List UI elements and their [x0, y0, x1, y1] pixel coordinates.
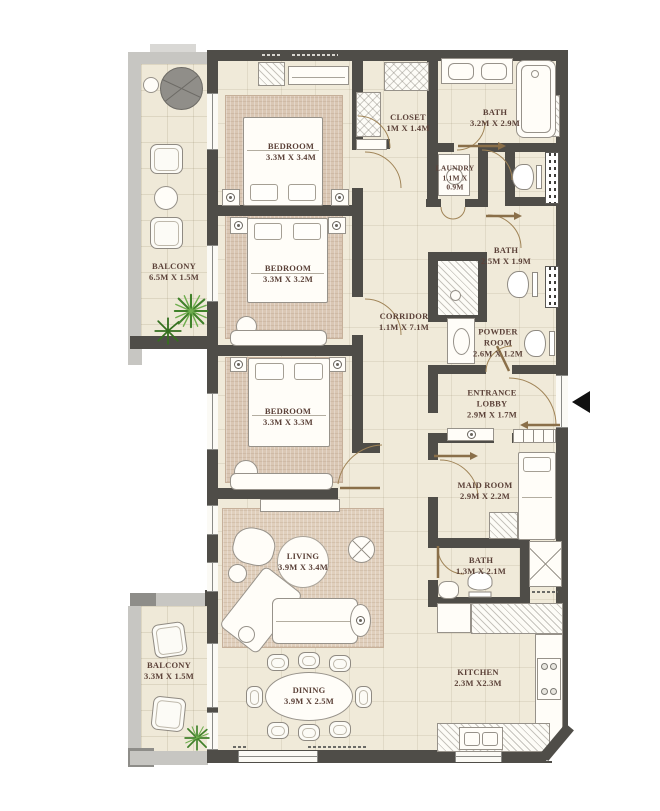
wall-corridor-b [352, 188, 363, 297]
room-dims: 3.3M X 3.4M [266, 152, 316, 163]
kitchen-sink [459, 727, 503, 750]
room-name: DINING [284, 685, 334, 696]
room-name: CORRIDOR [379, 311, 429, 322]
room-label-bedroom-3: BEDROOM 3.3M X 3.3M [263, 406, 313, 428]
wall-bed2-bed3 [207, 345, 353, 356]
room-name: MAID ROOM [458, 480, 513, 491]
room-name: LIVING [278, 551, 328, 562]
dining-chair [246, 686, 263, 708]
room-label-bath-1: BATH 3.2M X 2.9M [470, 107, 520, 129]
room-label-entrance-lobby: ENTRANCE LOBBY 2.9M X 1.7M [464, 388, 520, 421]
bath2-drain [450, 290, 461, 301]
dining-chair [267, 654, 289, 671]
dining-chair [329, 655, 351, 672]
bath2-toilet [507, 271, 538, 298]
bedroom2-nightstand-left [230, 217, 248, 234]
wall-laundry-right [478, 143, 488, 207]
room-label-laundry: LAUNDRY 1.1M X 0.9M [434, 164, 476, 193]
room-label-balcony-1: BALCONY 6.5M X 1.5M [149, 261, 199, 283]
bedroom1-nightstand-left [222, 189, 240, 206]
closet-cabinet [356, 139, 387, 150]
bedroom3-nightstand-left [230, 357, 247, 372]
side-table [350, 604, 371, 637]
room-label-dining: DINING 3.9M X 2.5M [284, 685, 334, 707]
wall-bath1-bottom-b [482, 143, 566, 152]
dining-chair [298, 724, 320, 741]
room-label-living: LIVING 3.9M X 3.4M [278, 551, 328, 573]
dimension-ticks [233, 746, 247, 748]
powder-toilet [524, 330, 555, 357]
bath3-sink [438, 581, 459, 599]
bedroom3-nightstand-right [329, 357, 346, 372]
room-dims: 1.3M X 2.1M [456, 566, 506, 577]
room-dims: 3.3M X 3.3M [263, 417, 313, 428]
living-window-1 [207, 505, 218, 535]
bath1-tub [516, 60, 556, 138]
room-dims: 2.3M X2.3M [454, 678, 502, 689]
closet-shelves-left [356, 92, 381, 137]
wall-bath3-top [428, 538, 530, 548]
bedroom1-wardrobe [288, 66, 349, 85]
room-label-kitchen: KITCHEN 2.3M X2.3M [454, 667, 502, 689]
shoe-cabinet [513, 429, 556, 443]
room-name: CLOSET [386, 112, 429, 123]
balcony1-top-rail [130, 52, 208, 64]
maid-dresser [489, 512, 518, 539]
bath2-shower-area [438, 261, 478, 315]
wall-bath2-left [428, 252, 438, 322]
room-dims: 2.9M X 2.2M [458, 491, 513, 502]
balcony2-top-cap [130, 593, 156, 606]
bath3-vent [532, 591, 558, 593]
stove [537, 658, 561, 700]
tv-console [260, 499, 340, 512]
bedroom3-window [207, 393, 218, 450]
balcony2-chair [150, 695, 186, 732]
room-label-powder-room: POWDER ROOM 2.6M X 1.2M [473, 327, 523, 360]
room-label-corridor: CORRIDOR 1.1M X 7.1M [379, 311, 429, 333]
room-dims: 2.9M X 1.7M [464, 409, 520, 420]
balcony2-chair [151, 621, 188, 659]
wall-lobby-left [428, 373, 438, 413]
room-name: BATH [456, 555, 506, 566]
dining-bottom-window [238, 751, 318, 762]
room-name: BATH [470, 107, 520, 118]
dining-chair [355, 686, 372, 708]
wall-bath1-bottom-a [428, 143, 454, 152]
fridge [437, 603, 471, 633]
room-dims: 3.3M X 1.5M [144, 671, 194, 682]
lobby-console [447, 428, 494, 441]
bath3-shower [529, 541, 562, 587]
room-dims: 1M X 1.4M [386, 123, 429, 134]
room-name: BEDROOM [263, 406, 313, 417]
wall-laundry-bottom-b [465, 199, 482, 207]
balcony1-left-rail [128, 52, 141, 352]
room-name: BEDROOM [266, 141, 316, 152]
room-label-bedroom-1: BEDROOM 3.3M X 3.4M [266, 141, 316, 163]
entrance-opening [556, 375, 568, 428]
balcony2-top-rail [156, 593, 207, 606]
wall-maid-left-a [428, 440, 438, 460]
closet-shelves-top [384, 62, 429, 91]
floor-plan: BALCONY 6.5M X 1.5M BEDROOM 3.3M X 3.4M … [0, 0, 660, 811]
living-window-2 [207, 562, 218, 592]
bedroom2-nightstand-right [328, 217, 346, 234]
plant [183, 724, 211, 752]
dimension-ticks [262, 54, 280, 56]
dimension-ticks [308, 746, 368, 748]
room-dims: 3.9M X 3.4M [278, 562, 328, 573]
coffee-table [348, 536, 375, 563]
balcony1-chair [150, 217, 183, 249]
powder-vanity [447, 318, 475, 364]
wall-laundry-bottom-a [426, 199, 441, 207]
wall-powder-bottom-b [512, 365, 558, 374]
room-label-balcony-2: BALCONY 3.3M X 1.5M [144, 660, 194, 682]
room-name: BALCONY [144, 660, 194, 671]
room-name: ENTRANCE LOBBY [464, 388, 520, 410]
wall-corridor-jamb [352, 443, 380, 453]
room-label-closet: CLOSET 1M X 1.4M [386, 112, 429, 134]
room-label-bedroom-2: BEDROOM 3.3M X 3.2M [263, 263, 313, 285]
bedroom3-bed [248, 358, 330, 447]
bedroom1-window [207, 93, 218, 150]
kitchen-counter-top [471, 603, 563, 634]
pouf-1 [228, 564, 247, 583]
bedroom1-dresser [258, 62, 285, 86]
room-name: LAUNDRY [434, 164, 476, 174]
bath1-vanity [441, 58, 513, 84]
bedroom2-desk [230, 330, 327, 346]
room-label-bath-2: BATH 2.5M X 1.9M [481, 245, 531, 267]
balcony1-chair [150, 144, 183, 174]
plant [153, 316, 183, 346]
sofa-seat [272, 598, 358, 644]
balcony1-round-table [160, 67, 203, 110]
room-dims: 3.3M X 3.2M [263, 274, 313, 285]
kitchen-window [455, 751, 502, 762]
room-name: BALCONY [149, 261, 199, 272]
room-name: KITCHEN [454, 667, 502, 678]
duct-shaft-2 [545, 266, 559, 308]
room-dims: 1.1M X 7.1M [379, 322, 429, 333]
room-name: BATH [481, 245, 531, 256]
room-name: POWDER ROOM [473, 327, 523, 349]
balcony1-side-table [154, 186, 178, 210]
room-label-bath-3: BATH 1.3M X 2.1M [456, 555, 506, 577]
balcony2-left-rail [128, 606, 141, 752]
room-dims: 6.5M X 1.5M [149, 272, 199, 283]
balcony2-bottom-rail [130, 751, 208, 765]
dining-chair [298, 652, 320, 669]
wall-bed1-bed2 [207, 205, 353, 216]
room-dims: 2.5M X 1.9M [481, 256, 531, 267]
wc-toilet [512, 164, 542, 190]
bedroom3-bench [230, 473, 333, 490]
room-dims: 3.9M X 2.5M [284, 696, 334, 707]
duct-shaft-1 [545, 152, 559, 204]
balcony1-small-table [143, 77, 159, 93]
room-label-maid-room: MAID ROOM 2.9M X 2.2M [458, 480, 513, 502]
balcony1-bottom-stub [128, 349, 142, 365]
room-name: BEDROOM [263, 263, 313, 274]
entrance-arrow-icon [572, 391, 590, 413]
room-dims: 3.2M X 2.9M [470, 118, 520, 129]
dining-window-1 [207, 643, 218, 708]
bedroom1-nightstand-right [331, 189, 349, 206]
room-dims: 1.1M X 0.9M [434, 173, 476, 192]
dining-chair [329, 721, 351, 738]
dining-chair [267, 722, 289, 739]
maid-bed [518, 452, 556, 540]
room-dims: 2.6M X 1.2M [473, 348, 523, 359]
pouf-2 [238, 626, 255, 643]
wall-corridor-c [352, 335, 363, 453]
dimension-ticks [292, 54, 338, 56]
bedroom2-bed [247, 218, 328, 303]
